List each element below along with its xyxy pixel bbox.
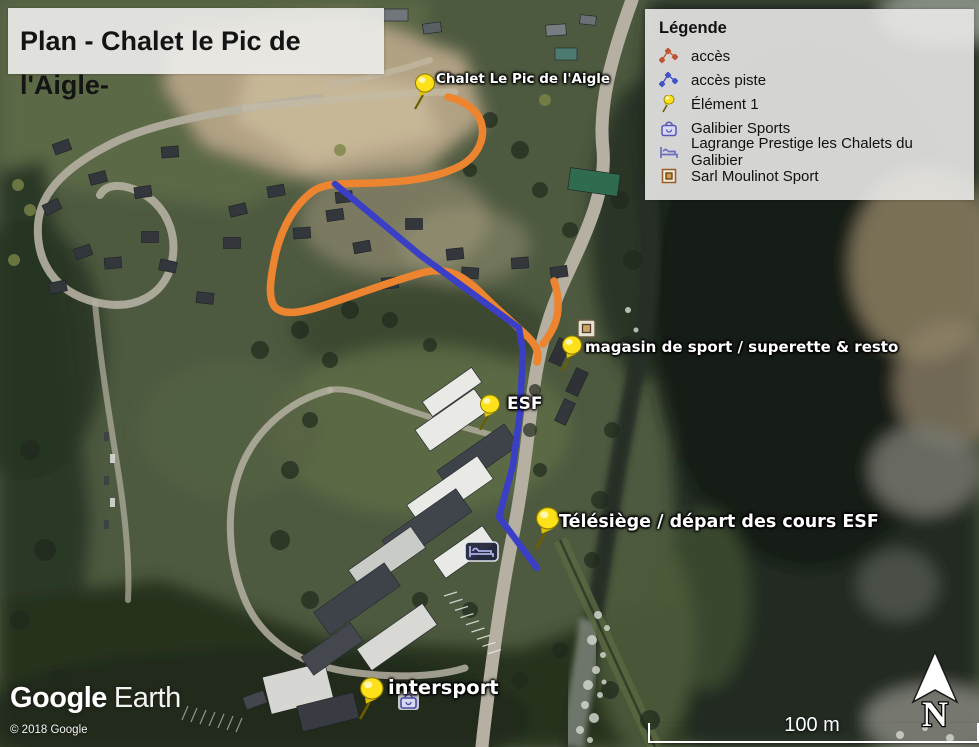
route-orange-icon (659, 47, 679, 65)
bed-icon (659, 143, 679, 161)
scale-line (648, 723, 979, 743)
pushpin-intersport[interactable] (360, 678, 383, 719)
legend-label: accès piste (691, 72, 766, 89)
legend-label: Galibier Sports (691, 120, 790, 137)
legend-title: Légende (659, 19, 962, 38)
copyright-text: © 2018 Google (10, 724, 181, 736)
acces-piste-route[interactable] (335, 184, 537, 568)
pin-label-intersport[interactable]: intersport (388, 676, 499, 699)
legend-label: Élément 1 (691, 96, 759, 113)
route-blue-icon (659, 71, 679, 89)
pushpin-icon (659, 95, 679, 113)
legend-label: Lagrange Prestige les Chalets du Galibie… (691, 135, 962, 169)
pin-label-magasin[interactable]: magasin de sport / superette & resto (585, 338, 898, 356)
google-earth-logo: GoogleEarth (10, 682, 181, 715)
legend-item-element1[interactable]: Élément 1 (659, 92, 962, 116)
acces-route-main (270, 97, 538, 362)
pushpin-magasin[interactable] (562, 336, 582, 371)
pin-label-chalet[interactable]: Chalet Le Pic de l'Aigle (436, 71, 610, 87)
map-title: Plan - Chalet le Pic de l'Aigle- (20, 19, 372, 107)
google-earth-map-view: N Chalet Le Pic de l'Aigle magasin de sp… (0, 0, 979, 747)
pin-label-esf[interactable]: ESF (507, 394, 542, 414)
pushpin-telesiege[interactable] (536, 508, 559, 549)
attribution: GoogleEarth © 2018 Google (10, 682, 181, 736)
pushpin-chalet[interactable] (415, 74, 435, 109)
legend-label: accès (691, 48, 730, 65)
bed-icon[interactable] (465, 542, 498, 561)
pin-label-telesiege[interactable]: Télésiège / départ des cours ESF (559, 512, 879, 532)
map-title-box: Plan - Chalet le Pic de l'Aigle- (8, 8, 384, 74)
legend-item-acces-piste[interactable]: accès piste (659, 68, 962, 92)
legend-label: Sarl Moulinot Sport (691, 168, 819, 185)
legend: Légende accès accès pis (645, 9, 974, 200)
square-marker-icon[interactable] (578, 320, 595, 337)
square-marker-icon (659, 167, 679, 185)
scale-bar: 100 m (648, 716, 976, 745)
pushpin-esf[interactable] (480, 395, 500, 430)
google-logo-text: Google (10, 682, 107, 714)
shopping-bag-icon (659, 119, 679, 137)
legend-item-lagrange[interactable]: Lagrange Prestige les Chalets du Galibie… (659, 140, 962, 164)
acces-route-spur (543, 281, 558, 344)
legend-item-acces[interactable]: accès (659, 44, 962, 68)
earth-logo-text: Earth (114, 682, 181, 714)
